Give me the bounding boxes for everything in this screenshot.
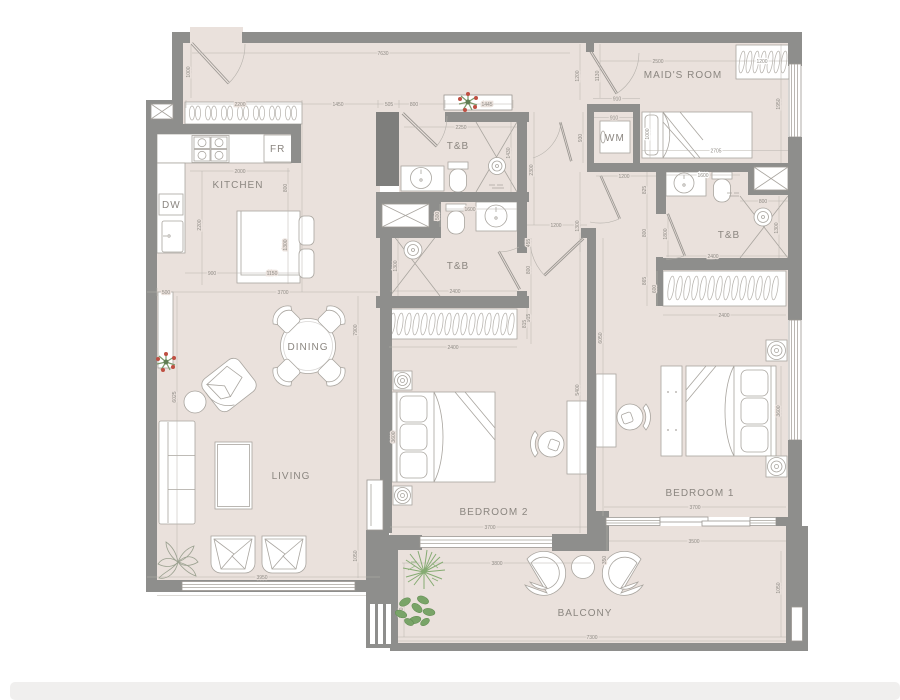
svg-text:BEDROOM 2: BEDROOM 2 — [459, 507, 528, 518]
svg-text:2500: 2500 — [652, 59, 663, 65]
svg-text:900: 900 — [208, 271, 217, 277]
svg-text:7900: 7900 — [353, 324, 359, 335]
svg-text:1300: 1300 — [575, 220, 581, 231]
svg-text:1200: 1200 — [618, 174, 629, 180]
svg-text:1445: 1445 — [481, 102, 492, 108]
svg-text:1300: 1300 — [393, 260, 399, 271]
svg-text:1200: 1200 — [575, 70, 581, 81]
svg-text:2705: 2705 — [710, 149, 721, 155]
svg-text:T&B: T&B — [447, 261, 469, 272]
svg-text:800: 800 — [283, 184, 289, 193]
svg-text:3700: 3700 — [689, 505, 700, 511]
svg-text:2000: 2000 — [234, 169, 245, 175]
svg-text:KITCHEN: KITCHEN — [213, 180, 264, 191]
svg-text:350: 350 — [602, 556, 608, 565]
svg-text:T&B: T&B — [447, 141, 469, 152]
svg-text:1050: 1050 — [353, 550, 359, 561]
svg-text:DINING: DINING — [288, 342, 329, 353]
svg-text:825: 825 — [642, 186, 648, 195]
svg-text:2400: 2400 — [707, 254, 718, 260]
svg-text:1300: 1300 — [283, 239, 289, 250]
svg-text:930: 930 — [578, 134, 584, 143]
svg-text:1450: 1450 — [332, 102, 343, 108]
svg-text:1050: 1050 — [776, 582, 782, 593]
svg-text:1800: 1800 — [663, 228, 669, 239]
svg-text:3700: 3700 — [277, 290, 288, 296]
svg-text:815: 815 — [522, 320, 528, 329]
svg-text:2200: 2200 — [197, 219, 203, 230]
svg-text:500: 500 — [162, 290, 171, 296]
svg-text:3600: 3600 — [391, 431, 397, 442]
svg-text:2400: 2400 — [718, 313, 729, 319]
svg-text:5400: 5400 — [575, 384, 581, 395]
svg-text:1000: 1000 — [645, 128, 651, 139]
svg-text:500: 500 — [435, 212, 441, 221]
svg-text:3950: 3950 — [256, 575, 267, 581]
svg-text:3700: 3700 — [484, 525, 495, 531]
svg-text:865: 865 — [642, 277, 648, 286]
svg-text:2250: 2250 — [455, 125, 466, 131]
svg-text:7300: 7300 — [586, 635, 597, 641]
svg-text:2400: 2400 — [449, 289, 460, 295]
svg-text:3600: 3600 — [776, 405, 782, 416]
svg-text:1300: 1300 — [774, 222, 780, 233]
svg-text:600: 600 — [652, 285, 658, 294]
svg-text:1000: 1000 — [186, 66, 192, 77]
svg-text:LIVING: LIVING — [272, 471, 311, 482]
svg-text:800: 800 — [759, 199, 768, 205]
svg-text:6050: 6050 — [598, 332, 604, 343]
svg-text:3800: 3800 — [491, 561, 502, 567]
svg-text:BEDROOM 1: BEDROOM 1 — [665, 488, 734, 499]
svg-text:WM: WM — [605, 133, 625, 144]
svg-text:2200: 2200 — [234, 102, 245, 108]
svg-text:DW: DW — [162, 200, 181, 211]
svg-text:FR: FR — [270, 144, 285, 155]
svg-text:800: 800 — [526, 266, 532, 275]
svg-text:2300: 2300 — [529, 164, 535, 175]
svg-text:6025: 6025 — [172, 391, 178, 402]
svg-text:800: 800 — [642, 229, 648, 238]
svg-text:1150: 1150 — [267, 271, 278, 277]
svg-text:T&B: T&B — [718, 230, 740, 241]
svg-text:455: 455 — [526, 239, 532, 248]
svg-text:1200: 1200 — [550, 223, 561, 229]
svg-text:1200: 1200 — [756, 59, 767, 65]
svg-text:3500: 3500 — [688, 539, 699, 545]
svg-text:7630: 7630 — [377, 51, 388, 57]
svg-text:MAID'S ROOM: MAID'S ROOM — [644, 70, 722, 81]
svg-text:1130: 1130 — [595, 70, 601, 81]
svg-text:910: 910 — [613, 97, 622, 103]
svg-text:2400: 2400 — [447, 345, 458, 351]
svg-text:1600: 1600 — [464, 207, 475, 213]
svg-text:800: 800 — [410, 102, 419, 108]
svg-text:1600: 1600 — [697, 173, 708, 179]
svg-text:910: 910 — [610, 116, 619, 122]
svg-text:1430: 1430 — [506, 147, 512, 158]
svg-text:BALCONY: BALCONY — [558, 608, 613, 619]
svg-text:505: 505 — [385, 102, 394, 108]
svg-text:1950: 1950 — [776, 98, 782, 109]
